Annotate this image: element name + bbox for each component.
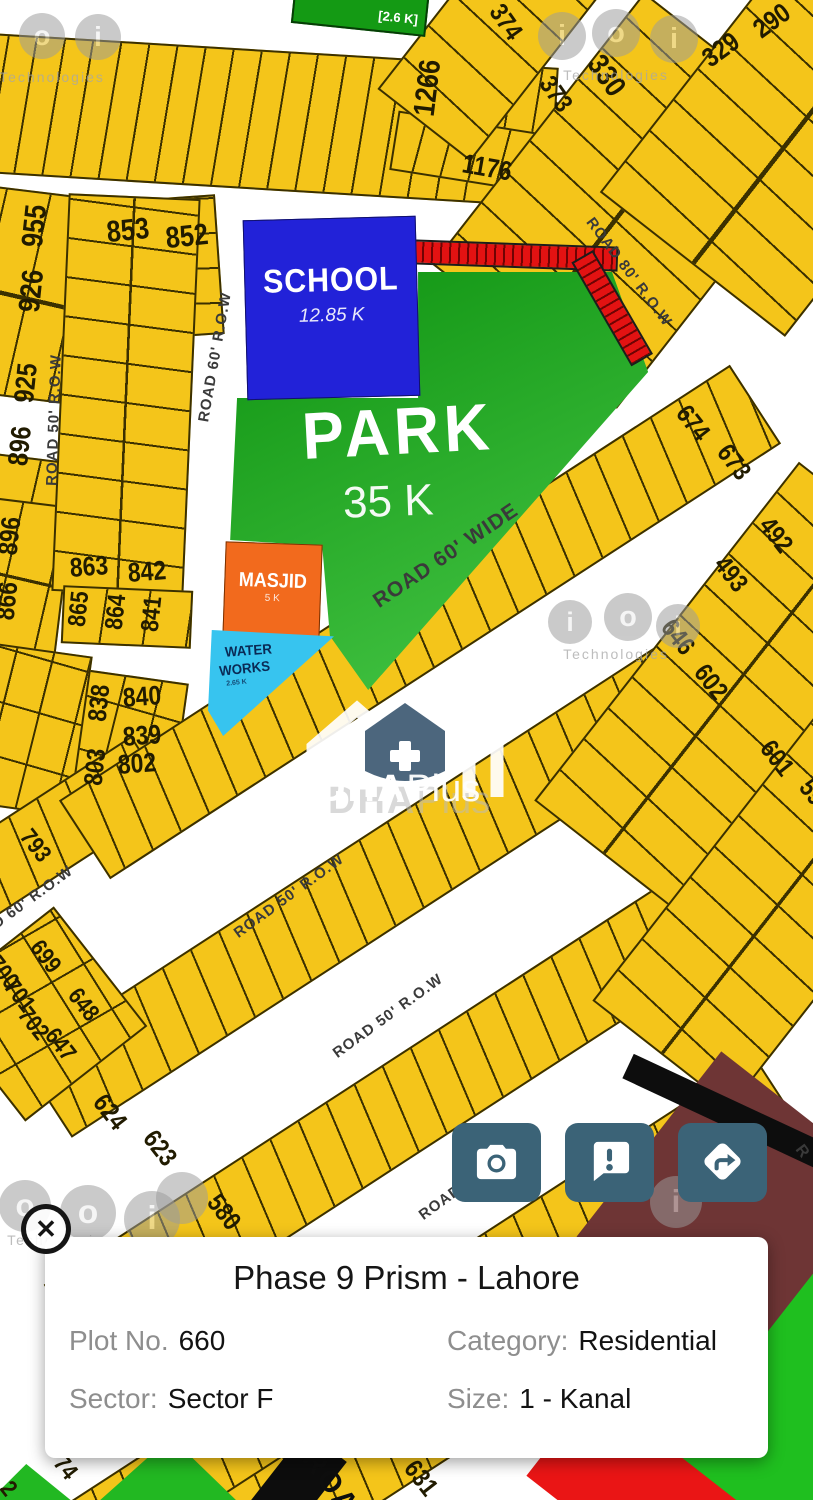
plot-number: 896 [2, 425, 38, 468]
plot-no-label: Plot No. [69, 1325, 169, 1356]
card-title: Phase 9 Prism - Lahore [69, 1259, 744, 1297]
plot-no-value: 660 [179, 1325, 226, 1356]
sector-label: Sector: [69, 1383, 158, 1414]
brand-light: Plus [406, 768, 480, 810]
plot-number: 842 [127, 555, 167, 589]
masjid-label: MASJID [230, 569, 316, 595]
green-belt-size-label: [2.6 K] [378, 8, 419, 27]
school-label: SCHOOL [252, 259, 410, 301]
plot-number: 896 [0, 515, 27, 556]
card-row: Sector:Sector F Size:1 - Kanal [69, 1383, 744, 1415]
plot-number: 925 [8, 362, 44, 405]
close-icon: ✕ [35, 1216, 57, 1242]
watermark-circle: i [538, 12, 586, 60]
camera-icon [473, 1138, 520, 1188]
school-size-label: 12.85 K [246, 303, 418, 329]
directions-button[interactable] [678, 1123, 767, 1202]
plot-number: 838 [82, 683, 117, 723]
watermark-circle: i [548, 600, 592, 644]
category-field: Category:Residential [447, 1325, 717, 1357]
plot-number: 852 [164, 218, 210, 256]
plot-number: 623 [136, 1124, 183, 1172]
plot-info-card: Phase 9 Prism - Lahore Plot No.660 Categ… [45, 1237, 768, 1458]
brand-bold: DHA [318, 768, 406, 810]
dha-plus-watermark-text: DHAPlus [318, 768, 480, 811]
category-label: Category: [447, 1325, 568, 1356]
plot-number: 865 [63, 590, 96, 628]
watermark-circle [156, 1172, 208, 1224]
watermark-circle: i [656, 604, 700, 648]
sector-field: Sector:Sector F [69, 1383, 447, 1415]
green-belt-strip[interactable]: [2.6 K] [291, 0, 430, 37]
school-area[interactable]: SCHOOL 12.85 K [243, 216, 421, 400]
plot-number: 955 [16, 203, 54, 249]
watermark-circle: o [592, 9, 640, 57]
sector-value: Sector F [168, 1383, 274, 1414]
watermark-technologies-text: Technologies [563, 646, 669, 662]
masjid-area[interactable]: MASJID 5 K [222, 541, 322, 641]
plot-no-field: Plot No.660 [69, 1325, 447, 1357]
directions-icon [699, 1138, 746, 1188]
report-issue-icon [586, 1138, 633, 1188]
watermark-circle: o [19, 13, 65, 59]
card-row: Plot No.660 Category:Residential [69, 1325, 744, 1357]
plot-number: 840 [122, 680, 162, 714]
close-button[interactable]: ✕ [21, 1204, 71, 1254]
plot-number: 1266 [408, 58, 449, 118]
watermark-technologies-text: Technologies [563, 67, 669, 83]
plot-number: 802 [117, 747, 157, 781]
report-issue-button[interactable] [565, 1123, 654, 1202]
plot-number: 841 [136, 595, 169, 633]
watermark-circle: o [604, 593, 652, 641]
watermark-circle: i [75, 14, 121, 60]
masjid-size-label: 5 K [225, 591, 320, 605]
plot-number: 866 [0, 580, 24, 621]
size-value: 1 - Kanal [519, 1383, 631, 1414]
camera-button[interactable] [452, 1123, 541, 1202]
watermark-circle: i [650, 15, 698, 63]
map-screen[interactable]: PARK 35 K SCHOOL 12.85 K MASJID 5 K WATE… [0, 0, 813, 1500]
watermark-technologies-text: Technologies [0, 69, 105, 85]
plot-number: 926 [13, 268, 51, 314]
plot-number: 853 [105, 212, 151, 250]
category-value: Residential [578, 1325, 717, 1356]
size-field: Size:1 - Kanal [447, 1383, 631, 1415]
plot-number: 863 [69, 550, 109, 584]
plot-number: 864 [100, 593, 133, 631]
size-label: Size: [447, 1383, 509, 1414]
plot-number: 803 [78, 747, 113, 787]
